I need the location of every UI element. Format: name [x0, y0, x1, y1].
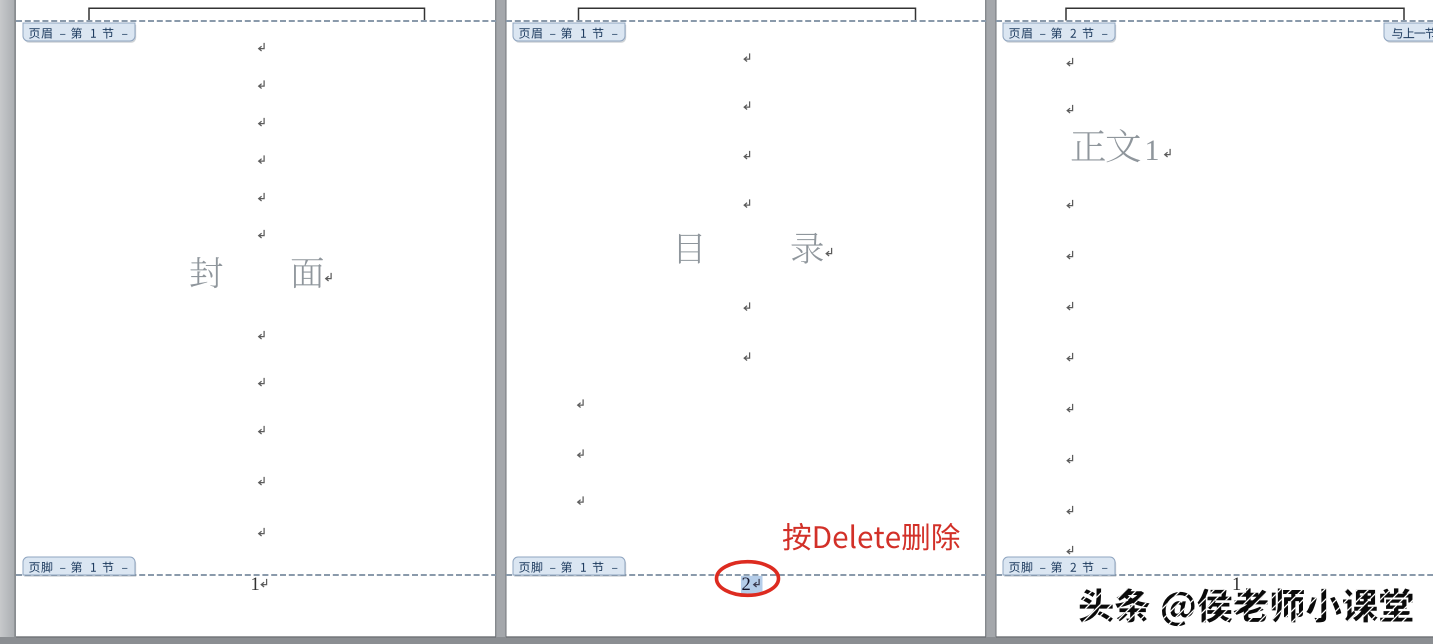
svg-text:1: 1 — [1232, 575, 1241, 595]
svg-text:2: 2 — [742, 575, 751, 595]
svg-text:1: 1 — [251, 575, 260, 595]
svg-text:1: 1 — [1145, 134, 1160, 167]
